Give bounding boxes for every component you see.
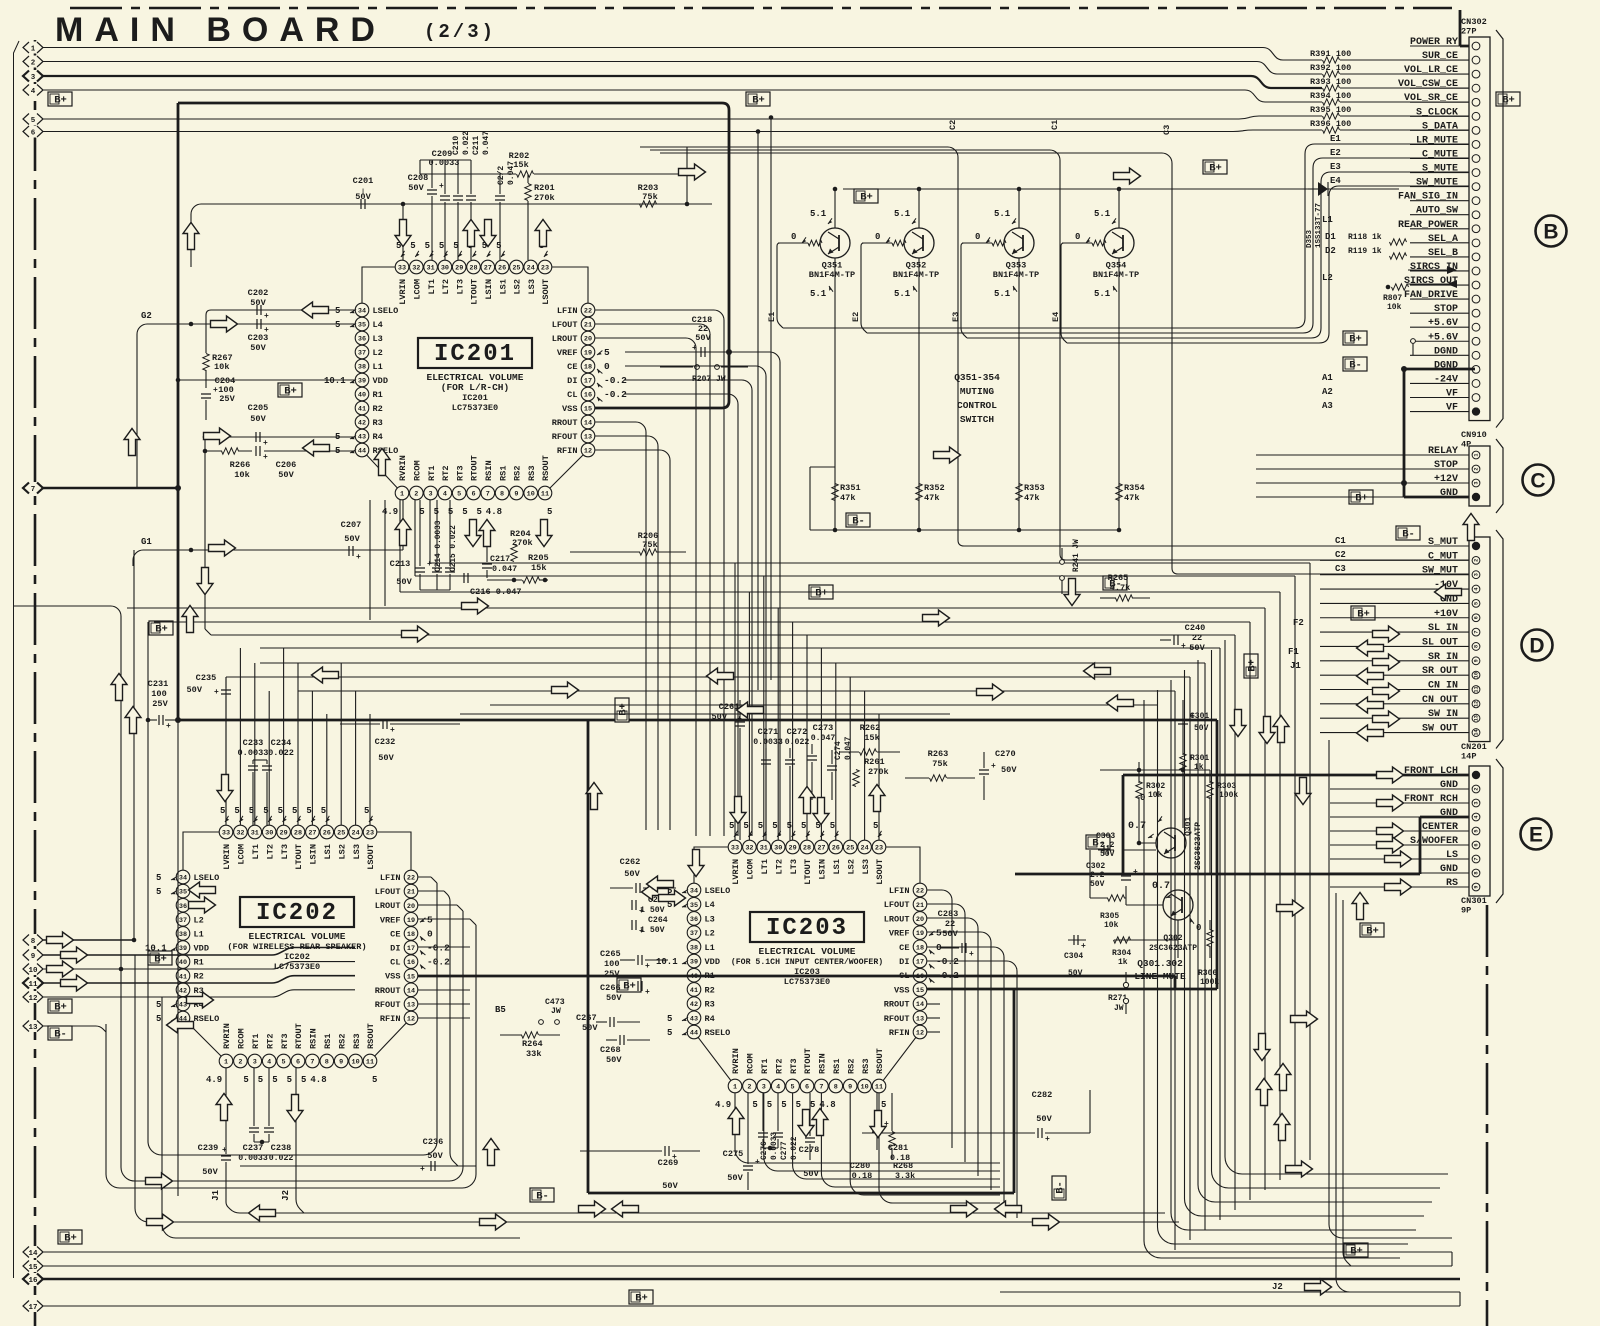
- svg-text:13: 13: [584, 434, 592, 442]
- svg-text:Q354: Q354: [1106, 261, 1127, 271]
- svg-text:5.1: 5.1: [1094, 209, 1111, 219]
- svg-text:LFOUT: LFOUT: [884, 900, 910, 910]
- svg-text:38: 38: [358, 364, 366, 372]
- svg-text:RT2: RT2: [774, 1059, 784, 1074]
- svg-text:1k: 1k: [1194, 763, 1204, 772]
- svg-text:R262: R262: [860, 723, 881, 733]
- svg-text:17: 17: [584, 378, 592, 386]
- svg-text:21: 21: [584, 322, 592, 330]
- svg-text:4.8: 4.8: [310, 1075, 326, 1085]
- svg-text:C234: C234: [271, 738, 292, 748]
- svg-text:B+: B+: [1502, 95, 1515, 107]
- svg-text:3: 3: [253, 1059, 257, 1067]
- svg-text:R304: R304: [1112, 949, 1131, 958]
- svg-text:DI: DI: [390, 944, 400, 954]
- svg-text:B-: B-: [1402, 529, 1415, 541]
- svg-text:R395 100: R395 100: [1310, 105, 1351, 115]
- svg-text:LT2: LT2: [441, 279, 451, 294]
- svg-text:RFOUT: RFOUT: [884, 1014, 910, 1024]
- svg-text:6: 6: [805, 1084, 809, 1092]
- svg-text:3: 3: [429, 491, 433, 499]
- svg-text:LFOUT: LFOUT: [552, 320, 578, 330]
- svg-text:7: 7: [486, 491, 490, 499]
- svg-text:29: 29: [789, 845, 797, 853]
- svg-text:15k: 15k: [513, 160, 528, 170]
- svg-text:B+: B+: [1209, 163, 1222, 175]
- svg-text:RFIN: RFIN: [380, 1014, 401, 1024]
- svg-text:RSIN: RSIN: [309, 1028, 319, 1049]
- svg-text:9: 9: [31, 953, 36, 961]
- svg-text:IC202: IC202: [284, 952, 310, 962]
- svg-text:16: 16: [407, 959, 415, 967]
- svg-text:5: 5: [243, 1075, 248, 1085]
- svg-text:5: 5: [462, 507, 467, 517]
- svg-text:5: 5: [321, 806, 326, 816]
- svg-text:R391 100: R391 100: [1310, 49, 1351, 59]
- svg-text:5: 5: [220, 806, 225, 816]
- svg-text:L1: L1: [194, 929, 204, 939]
- svg-text:25V: 25V: [152, 699, 168, 709]
- svg-text:50V: 50V: [187, 685, 203, 695]
- svg-text:R201: R201: [534, 183, 555, 193]
- svg-text:C233: C233: [243, 738, 264, 748]
- svg-text:13: 13: [916, 1015, 924, 1023]
- svg-text:LVRIN: LVRIN: [398, 279, 408, 305]
- svg-text:VREF: VREF: [380, 915, 401, 925]
- svg-text:Q352: Q352: [906, 261, 927, 271]
- svg-text:5: 5: [729, 821, 734, 831]
- svg-text:39: 39: [179, 945, 187, 953]
- svg-text:12: 12: [28, 995, 38, 1003]
- svg-text:B+: B+: [860, 192, 873, 204]
- svg-text:5: 5: [936, 928, 942, 939]
- svg-text:18: 18: [916, 944, 924, 952]
- svg-text:C275: C275: [723, 1149, 744, 1159]
- svg-text:0: 0: [875, 232, 880, 242]
- svg-text:30: 30: [265, 830, 273, 838]
- svg-text:CE: CE: [567, 362, 577, 372]
- svg-text:+: +: [356, 553, 361, 562]
- svg-text:E3: E3: [951, 312, 961, 322]
- svg-text:CN302: CN302: [1461, 17, 1487, 27]
- svg-text:RS1: RS1: [498, 466, 508, 481]
- svg-text:B-: B-: [1055, 1181, 1067, 1194]
- svg-text:IC202: IC202: [256, 900, 338, 927]
- svg-text:32: 32: [745, 845, 753, 853]
- svg-text:E1: E1: [767, 312, 777, 322]
- svg-text:C278: C278: [799, 1145, 820, 1155]
- svg-text:R3: R3: [705, 1000, 715, 1010]
- svg-text:LFOUT: LFOUT: [375, 887, 401, 897]
- svg-text:R351: R351: [840, 483, 861, 493]
- svg-text:LS2: LS2: [337, 844, 347, 859]
- svg-text:C273: C273: [813, 723, 834, 733]
- svg-text:36: 36: [690, 916, 698, 924]
- svg-text:25: 25: [337, 830, 345, 838]
- svg-text:C205: C205: [248, 403, 269, 413]
- svg-text:DI: DI: [899, 957, 909, 967]
- svg-text:5: 5: [743, 821, 748, 831]
- svg-text:3: 3: [1474, 573, 1480, 576]
- svg-text:4: 4: [1474, 587, 1480, 590]
- svg-text:C1: C1: [1050, 120, 1060, 130]
- svg-text:+: +: [390, 726, 395, 735]
- svg-text:BN1F4M-TP: BN1F4M-TP: [993, 270, 1039, 280]
- svg-text:RCOM: RCOM: [746, 1053, 756, 1074]
- svg-text:LTOUT: LTOUT: [803, 859, 813, 885]
- svg-text:22: 22: [584, 308, 592, 316]
- svg-text:47k: 47k: [924, 493, 939, 503]
- svg-text:D2: D2: [1325, 246, 1336, 256]
- svg-text:L2: L2: [705, 929, 715, 939]
- svg-text:LROUT: LROUT: [552, 334, 578, 344]
- svg-text:47k: 47k: [1024, 493, 1039, 503]
- svg-text:5: 5: [781, 1100, 786, 1110]
- svg-text:5: 5: [801, 821, 806, 831]
- svg-text:B-: B-: [536, 1191, 549, 1203]
- svg-text:5.1: 5.1: [894, 289, 911, 299]
- svg-text:B+: B+: [752, 95, 765, 107]
- svg-text:20: 20: [584, 336, 592, 344]
- svg-text:13: 13: [407, 1002, 415, 1010]
- svg-text:C283: C283: [938, 909, 959, 919]
- svg-text:MAIN BOARD: MAIN BOARD: [55, 11, 386, 49]
- svg-text:35: 35: [179, 889, 187, 897]
- svg-text:44: 44: [358, 448, 366, 456]
- svg-text:C232: C232: [375, 737, 396, 747]
- svg-text:32: 32: [236, 830, 244, 838]
- svg-text:4: 4: [31, 88, 36, 96]
- svg-text:18: 18: [584, 364, 592, 372]
- svg-text:10: 10: [28, 967, 38, 975]
- svg-text:50V: 50V: [427, 1151, 443, 1161]
- svg-text:L1: L1: [705, 943, 715, 953]
- svg-text:RS3: RS3: [527, 466, 537, 481]
- svg-text:RROUT: RROUT: [884, 1000, 910, 1010]
- svg-text:41: 41: [179, 973, 187, 981]
- svg-text:C3: C3: [1335, 564, 1346, 574]
- svg-text:0: 0: [791, 232, 796, 242]
- svg-text:5: 5: [335, 320, 340, 330]
- svg-text:C237: C237: [243, 1143, 264, 1153]
- svg-text:6: 6: [1474, 843, 1480, 846]
- svg-text:C282: C282: [1032, 1090, 1053, 1100]
- svg-text:G1: G1: [141, 537, 152, 547]
- svg-text:C240: C240: [1185, 623, 1206, 633]
- svg-text:RROUT: RROUT: [552, 418, 578, 428]
- svg-text:C301: C301: [1190, 712, 1209, 721]
- svg-text:B5: B5: [495, 1005, 506, 1015]
- svg-text:RVRIN: RVRIN: [222, 1023, 232, 1049]
- svg-text:L3: L3: [705, 914, 715, 924]
- svg-text:10: 10: [861, 1084, 869, 1092]
- svg-text:RT3: RT3: [280, 1034, 290, 1049]
- svg-text:15k: 15k: [864, 733, 879, 743]
- svg-text:L3: L3: [373, 334, 383, 344]
- svg-text:44: 44: [690, 1030, 698, 1038]
- svg-text:E3: E3: [1330, 162, 1341, 172]
- svg-text:RFIN: RFIN: [889, 1028, 910, 1038]
- svg-text:C214 0.0033: C214 0.0033: [435, 520, 443, 572]
- svg-text:(FOR 5.1CH INPUT CENTER/WOOFER: (FOR 5.1CH INPUT CENTER/WOOFER): [731, 957, 883, 967]
- svg-text:+: +: [639, 907, 644, 916]
- svg-text:+: +: [420, 1165, 425, 1174]
- svg-text:RVRIN: RVRIN: [398, 455, 408, 481]
- svg-text:5: 5: [263, 806, 268, 816]
- svg-text:5: 5: [873, 821, 878, 831]
- svg-text:5: 5: [457, 491, 461, 499]
- svg-text:23: 23: [875, 845, 883, 853]
- svg-text:B+: B+: [54, 95, 67, 107]
- svg-text:0.022: 0.022: [268, 748, 294, 758]
- svg-text:27P: 27P: [1461, 27, 1476, 37]
- svg-text:C274: C274: [835, 741, 843, 760]
- svg-text:1k: 1k: [1118, 958, 1128, 967]
- svg-text:C202: C202: [248, 288, 269, 298]
- svg-text:LS3: LS3: [527, 279, 537, 294]
- svg-text:10.1: 10.1: [324, 376, 346, 386]
- svg-text:+: +: [1045, 1135, 1050, 1144]
- svg-text:5: 5: [282, 1059, 286, 1067]
- svg-text:40: 40: [179, 959, 187, 967]
- svg-text:4.8: 4.8: [486, 507, 502, 517]
- svg-text:35: 35: [358, 322, 366, 330]
- svg-text:42: 42: [179, 987, 187, 995]
- svg-text:19: 19: [407, 917, 415, 925]
- svg-text:LS2: LS2: [513, 279, 523, 294]
- svg-text:1: 1: [733, 1084, 737, 1092]
- svg-text:15: 15: [407, 973, 415, 981]
- svg-text:R393 100: R393 100: [1310, 77, 1351, 87]
- svg-text:20: 20: [916, 916, 924, 924]
- svg-text:4.7k: 4.7k: [1110, 583, 1131, 593]
- svg-text:+: +: [166, 722, 171, 731]
- svg-text:0.047: 0.047: [845, 736, 853, 760]
- svg-text:A3: A3: [1322, 401, 1333, 411]
- svg-text:0: 0: [427, 928, 433, 939]
- svg-text:8: 8: [834, 1084, 838, 1092]
- svg-text:13: 13: [28, 1024, 38, 1032]
- svg-text:R1: R1: [194, 958, 204, 968]
- svg-text:11: 11: [541, 491, 549, 499]
- svg-text:5.1: 5.1: [1094, 289, 1111, 299]
- svg-text:4P: 4P: [1461, 440, 1471, 450]
- svg-text:50V: 50V: [202, 1167, 218, 1177]
- svg-text:0: 0: [1196, 923, 1201, 933]
- svg-text:RSIN: RSIN: [818, 1053, 828, 1074]
- svg-text:CN910: CN910: [1461, 430, 1487, 440]
- svg-text:Q302: Q302: [1163, 934, 1182, 943]
- svg-text:C1: C1: [1335, 536, 1346, 546]
- svg-text:50V: 50V: [1068, 969, 1083, 978]
- svg-text:SWITCH: SWITCH: [960, 414, 995, 425]
- svg-text:LSIN: LSIN: [818, 859, 828, 880]
- svg-text:B+: B+: [1349, 334, 1362, 346]
- svg-text:VDD: VDD: [705, 957, 720, 967]
- svg-text:J1: J1: [211, 1189, 221, 1200]
- svg-text:41: 41: [690, 987, 698, 995]
- svg-text:2: 2: [1474, 559, 1480, 562]
- svg-text:(FOR L/R-CH): (FOR L/R-CH): [441, 382, 509, 393]
- svg-text:5: 5: [156, 873, 161, 883]
- svg-text:2.2: 2.2: [1100, 841, 1115, 850]
- svg-text:5: 5: [667, 1014, 672, 1024]
- svg-text:VREF: VREF: [557, 348, 578, 358]
- svg-text:L2: L2: [194, 915, 204, 925]
- svg-text:R265: R265: [1108, 573, 1129, 583]
- svg-text:5: 5: [439, 241, 444, 251]
- svg-text:50V: 50V: [355, 192, 371, 202]
- svg-text:RT2: RT2: [265, 1034, 275, 1049]
- svg-text:C211: C211: [472, 136, 481, 155]
- svg-text:CN201: CN201: [1461, 742, 1487, 752]
- svg-text:50V: 50V: [1036, 1114, 1052, 1124]
- svg-text:7: 7: [310, 1059, 314, 1067]
- svg-text:R4: R4: [373, 432, 383, 442]
- svg-text:5: 5: [364, 806, 369, 816]
- svg-text:5: 5: [272, 1075, 277, 1085]
- svg-text:RFOUT: RFOUT: [552, 432, 578, 442]
- svg-text:2: 2: [238, 1059, 242, 1067]
- svg-text:B-: B-: [852, 516, 865, 528]
- svg-text:14: 14: [407, 987, 415, 995]
- svg-text:0.047: 0.047: [811, 734, 836, 743]
- svg-text:1: 1: [1474, 453, 1480, 456]
- svg-text:C266: C266: [600, 983, 621, 993]
- svg-text:5: 5: [278, 806, 283, 816]
- svg-text:LSELO: LSELO: [373, 306, 399, 316]
- svg-text:50V: 50V: [1001, 765, 1017, 775]
- svg-text:38: 38: [690, 944, 698, 952]
- svg-text:RTOUT: RTOUT: [294, 1023, 304, 1049]
- svg-text:J2: J2: [281, 1190, 291, 1201]
- svg-text:25: 25: [512, 265, 520, 273]
- svg-text:33: 33: [398, 265, 406, 273]
- svg-text:4.9: 4.9: [206, 1075, 222, 1085]
- svg-text:5: 5: [448, 507, 453, 517]
- svg-text:11: 11: [28, 981, 38, 989]
- svg-text:+: +: [263, 453, 268, 462]
- svg-text:LTOUT: LTOUT: [294, 844, 304, 870]
- svg-text:22: 22: [916, 888, 924, 896]
- svg-text:B: B: [1543, 221, 1558, 244]
- svg-text:31: 31: [251, 830, 259, 838]
- svg-text:25V: 25V: [604, 969, 620, 979]
- svg-text:VDD: VDD: [194, 944, 209, 954]
- svg-text:+: +: [672, 1153, 677, 1162]
- svg-text:31: 31: [427, 265, 435, 273]
- svg-text:-0.2: -0.2: [427, 943, 450, 954]
- svg-text:2: 2: [414, 491, 418, 499]
- svg-text:LROUT: LROUT: [375, 901, 401, 911]
- svg-text:22: 22: [407, 875, 415, 883]
- svg-text:28: 28: [294, 830, 302, 838]
- svg-text:5: 5: [31, 117, 36, 125]
- svg-text:14: 14: [1474, 729, 1480, 735]
- svg-text:12: 12: [1474, 701, 1480, 707]
- svg-text:21: 21: [916, 902, 924, 910]
- svg-text:4: 4: [1474, 815, 1480, 818]
- svg-text:CE: CE: [390, 929, 400, 939]
- svg-text:38: 38: [179, 931, 187, 939]
- svg-text:0.047: 0.047: [492, 564, 517, 574]
- svg-text:E4: E4: [1330, 176, 1341, 186]
- svg-text:VREF: VREF: [889, 929, 910, 939]
- svg-text:5: 5: [767, 1100, 772, 1110]
- svg-text:B-: B-: [54, 1029, 67, 1041]
- svg-text:VDD: VDD: [373, 376, 388, 386]
- svg-text:L4: L4: [705, 900, 715, 910]
- svg-text:28: 28: [803, 845, 811, 853]
- svg-text:42: 42: [690, 1001, 698, 1009]
- svg-text:LT3: LT3: [280, 844, 290, 859]
- svg-text:R305: R305: [1100, 912, 1119, 921]
- svg-text:5: 5: [427, 914, 433, 925]
- svg-text:3: 3: [762, 1084, 766, 1092]
- svg-text:VSS: VSS: [562, 404, 577, 414]
- svg-text:R2: R2: [705, 985, 715, 995]
- svg-text:B+: B+: [815, 588, 828, 600]
- svg-text:36: 36: [358, 336, 366, 344]
- svg-text:14P: 14P: [1461, 752, 1476, 762]
- svg-text:5: 5: [752, 1100, 757, 1110]
- svg-text:VSS: VSS: [894, 985, 909, 995]
- svg-text:75k: 75k: [932, 759, 947, 769]
- svg-text:50V: 50V: [942, 929, 958, 939]
- svg-text:37: 37: [358, 350, 366, 358]
- svg-text:R119 1k: R119 1k: [1348, 247, 1382, 256]
- svg-text:R392 100: R392 100: [1310, 63, 1351, 73]
- svg-text:L2: L2: [1322, 273, 1333, 283]
- svg-text:270k: 270k: [868, 767, 889, 777]
- svg-text:5: 5: [434, 507, 439, 517]
- svg-text:RSOUT: RSOUT: [366, 1023, 376, 1049]
- svg-text:LCOM: LCOM: [746, 859, 756, 880]
- svg-text:21: 21: [407, 889, 415, 897]
- svg-text:C268: C268: [600, 1045, 621, 1055]
- svg-text:RSELO: RSELO: [194, 1014, 220, 1024]
- svg-text:9: 9: [1474, 885, 1480, 888]
- svg-text:20: 20: [407, 903, 415, 911]
- svg-text:G2: G2: [141, 311, 152, 321]
- svg-text:R1: R1: [373, 390, 383, 400]
- svg-text:C215 0.022: C215 0.022: [450, 525, 458, 572]
- svg-text:+: +: [213, 386, 218, 395]
- svg-text:5: 5: [830, 821, 835, 831]
- svg-text:5: 5: [306, 806, 311, 816]
- svg-text:C277: C277: [781, 1141, 789, 1160]
- svg-text:-0.2: -0.2: [604, 375, 627, 386]
- svg-text:B+: B+: [1366, 926, 1379, 938]
- svg-text:B+: B+: [1357, 609, 1370, 621]
- svg-text:IC203: IC203: [766, 915, 848, 942]
- svg-text:R807: R807: [1383, 294, 1402, 303]
- svg-text:R302: R302: [1146, 782, 1165, 791]
- svg-text:R354: R354: [1124, 483, 1145, 493]
- svg-text:0.7: 0.7: [1128, 821, 1146, 832]
- svg-text:A1: A1: [1322, 373, 1333, 383]
- svg-text:50V: 50V: [250, 414, 266, 424]
- svg-text:5.1: 5.1: [994, 289, 1011, 299]
- svg-text:43: 43: [690, 1015, 698, 1023]
- svg-text:28: 28: [469, 265, 477, 273]
- svg-text:5.1: 5.1: [810, 289, 827, 299]
- svg-text:50V: 50V: [582, 1023, 598, 1033]
- svg-text:RS1: RS1: [832, 1059, 842, 1074]
- svg-text:IC201: IC201: [434, 341, 516, 368]
- svg-text:ELECTRICAL VOLUME: ELECTRICAL VOLUME: [249, 931, 346, 942]
- svg-text:B+: B+: [284, 386, 297, 398]
